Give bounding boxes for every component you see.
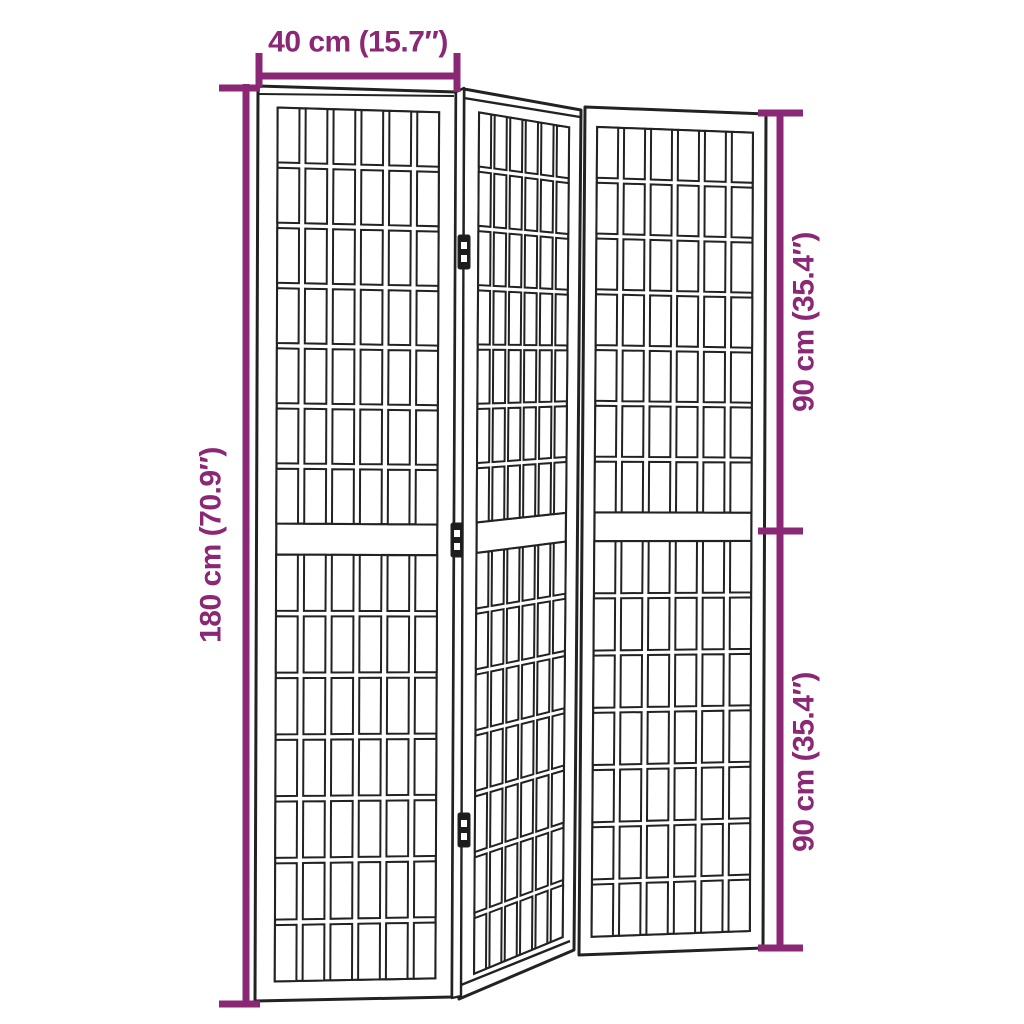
hinge-hole bbox=[461, 242, 467, 249]
lattice-cell bbox=[331, 678, 353, 734]
lattice-cell bbox=[623, 295, 644, 346]
panel-left-mid-rail bbox=[276, 555, 437, 556]
lattice-cell bbox=[361, 290, 383, 345]
lattice-cell bbox=[592, 884, 614, 937]
lattice-cell bbox=[553, 542, 565, 596]
lattice-cell bbox=[595, 462, 617, 513]
lattice-cell bbox=[554, 462, 567, 514]
lattice-cell bbox=[388, 410, 410, 465]
lattice-cell bbox=[389, 171, 411, 226]
lattice-cell bbox=[732, 132, 753, 183]
lattice-cell bbox=[414, 861, 436, 917]
lattice-cell bbox=[622, 462, 643, 513]
lattice-cell bbox=[678, 185, 699, 236]
lattice-cell bbox=[675, 598, 696, 650]
lattice-cell bbox=[360, 469, 382, 524]
lattice-cell bbox=[525, 178, 538, 231]
lattice-cell bbox=[592, 827, 614, 880]
panel-middle bbox=[459, 89, 581, 999]
lattice-cell bbox=[675, 711, 697, 763]
lattice-cell bbox=[417, 231, 439, 286]
lattice-cell bbox=[277, 228, 299, 283]
lattice-cell bbox=[705, 186, 726, 237]
lattice-cell bbox=[524, 350, 536, 402]
lattice-cell bbox=[651, 129, 672, 180]
lattice-cell bbox=[592, 770, 614, 823]
lattice-cell bbox=[276, 678, 298, 734]
lattice-cell bbox=[594, 541, 616, 593]
lattice-cell bbox=[416, 291, 438, 346]
lattice-cell bbox=[647, 769, 669, 821]
lattice-cell bbox=[649, 406, 670, 457]
lattice-cell bbox=[674, 881, 696, 933]
lattice-cell bbox=[277, 409, 299, 464]
lattice-cell bbox=[704, 297, 725, 348]
lattice-cell bbox=[416, 351, 438, 406]
hinge-icon bbox=[458, 235, 470, 269]
lattice-cell bbox=[389, 111, 411, 166]
lattice-cell bbox=[731, 407, 752, 457]
lattice-cell bbox=[523, 464, 535, 517]
lattice-cell bbox=[475, 793, 487, 852]
lattice-cell bbox=[525, 235, 537, 288]
lattice-cell bbox=[703, 462, 724, 512]
lattice-cell bbox=[475, 733, 487, 792]
lattice-cell bbox=[305, 169, 327, 224]
lattice-cell bbox=[476, 552, 488, 609]
lattice-cell bbox=[387, 616, 409, 672]
lattice-cell bbox=[650, 351, 671, 402]
lattice-cell bbox=[521, 780, 533, 837]
lattice-cell bbox=[540, 293, 553, 345]
hinge-hole bbox=[461, 833, 467, 840]
lattice-cell bbox=[677, 296, 698, 347]
lattice-cell bbox=[494, 174, 506, 229]
lattice-cell bbox=[729, 710, 751, 762]
lattice-cell bbox=[539, 407, 551, 459]
lattice-cell bbox=[331, 739, 353, 795]
lattice-cell bbox=[477, 409, 489, 463]
lattice-cell bbox=[597, 127, 618, 178]
lattice-cell bbox=[702, 654, 724, 706]
hinge-hole bbox=[454, 543, 460, 550]
lattice-cell bbox=[417, 171, 439, 226]
lattice-cell bbox=[703, 598, 724, 650]
lattice-cell bbox=[414, 800, 436, 856]
lattice-cell bbox=[621, 598, 643, 650]
lattice-cell bbox=[507, 548, 519, 604]
lattice-cell bbox=[648, 541, 669, 593]
lattice-cell bbox=[493, 408, 505, 462]
lattice-cell bbox=[731, 297, 752, 348]
lattice-cell bbox=[491, 729, 503, 787]
lattice-cell bbox=[729, 880, 751, 932]
lattice-cell bbox=[702, 767, 724, 819]
lattice-cell bbox=[415, 617, 437, 673]
lattice-cell bbox=[276, 555, 298, 611]
lattice-cell bbox=[389, 290, 411, 345]
lattice-cell bbox=[361, 170, 383, 225]
lattice-cell bbox=[388, 470, 410, 525]
panel-right bbox=[579, 107, 766, 955]
lattice-cell bbox=[729, 767, 751, 819]
lattice-cell bbox=[524, 293, 536, 346]
lattice-cell bbox=[619, 826, 641, 879]
lattice-cell bbox=[620, 769, 642, 821]
lattice-cell bbox=[622, 406, 644, 457]
lattice-cell bbox=[553, 656, 565, 711]
lattice-cell bbox=[506, 784, 518, 842]
lattice-cell bbox=[508, 350, 520, 403]
lattice-cell bbox=[523, 546, 535, 601]
lattice-cell bbox=[538, 544, 551, 599]
lattice-cell bbox=[593, 655, 615, 707]
lattice-cell bbox=[494, 115, 507, 170]
room-divider-dimension-diagram: 40 cm (15.7″) 180 cm (70.9″) 90 cm (35.4… bbox=[0, 0, 1024, 1024]
lattice-cell bbox=[333, 109, 355, 164]
lattice-cell bbox=[303, 678, 325, 734]
lattice-cell bbox=[491, 669, 503, 726]
lattice-cell bbox=[677, 241, 698, 292]
lattice-cell bbox=[524, 407, 536, 460]
lattice-cell bbox=[521, 838, 533, 896]
lattice-cell bbox=[305, 289, 327, 344]
lattice-cell bbox=[552, 771, 564, 827]
lattice-cell bbox=[674, 768, 696, 820]
hinge-icon bbox=[458, 813, 470, 847]
lattice-cell bbox=[540, 237, 553, 289]
lattice-cell bbox=[305, 229, 327, 284]
dimension-label-height: 180 cm (70.9″) bbox=[195, 447, 228, 643]
lattice-cell bbox=[389, 231, 411, 286]
lattice-cell bbox=[415, 678, 437, 734]
hinge-hole bbox=[461, 255, 467, 262]
lattice-cell bbox=[595, 406, 617, 457]
lattice-cell bbox=[509, 292, 521, 345]
lattice-cell bbox=[332, 555, 354, 611]
lattice-cell bbox=[304, 616, 326, 672]
lattice-cell bbox=[489, 908, 501, 967]
lattice-cell bbox=[730, 541, 751, 593]
lattice-cell bbox=[539, 350, 551, 402]
dimension-label-panel-height-top: 90 cm (35.4″) bbox=[788, 232, 821, 412]
lattice-cell bbox=[624, 128, 645, 179]
lattice-cell bbox=[508, 408, 520, 461]
lattice-cell bbox=[333, 229, 355, 284]
lattice-cell bbox=[277, 168, 299, 223]
lattice-cell bbox=[522, 663, 534, 719]
lattice-cell bbox=[596, 239, 617, 290]
lattice-cell bbox=[358, 862, 380, 918]
lattice-cell bbox=[278, 108, 300, 163]
dimension-label-width: 40 cm (15.7″) bbox=[268, 26, 448, 59]
lattice-cell bbox=[674, 825, 696, 877]
lattice-cell bbox=[701, 880, 723, 932]
lattice-cell bbox=[701, 824, 723, 876]
lattice-cell bbox=[648, 598, 670, 650]
lattice-cell bbox=[277, 288, 299, 343]
lattice-cell bbox=[551, 828, 563, 885]
lattice-cell bbox=[552, 713, 564, 769]
lattice-cell bbox=[333, 349, 355, 404]
lattice-cell bbox=[493, 291, 505, 345]
lattice-cell bbox=[303, 863, 325, 920]
lattice-cell bbox=[703, 541, 724, 593]
lattice-cell bbox=[703, 407, 724, 458]
lattice-cell bbox=[623, 184, 644, 235]
lattice-cell bbox=[478, 231, 490, 286]
lattice-cell bbox=[505, 902, 517, 961]
lattice-cell bbox=[478, 172, 491, 227]
lattice-cell bbox=[303, 924, 325, 981]
lattice-cell bbox=[415, 739, 437, 795]
lattice-cell bbox=[478, 290, 490, 344]
hinge-hole bbox=[454, 530, 460, 537]
lattice-cell bbox=[553, 599, 566, 654]
lattice-cell bbox=[387, 678, 409, 734]
lattice-cell bbox=[510, 176, 523, 230]
lattice-cell bbox=[476, 612, 488, 670]
lattice-cell bbox=[492, 466, 504, 520]
hinge-body bbox=[458, 813, 470, 847]
lattice-cell bbox=[479, 113, 491, 169]
lattice-cell bbox=[651, 184, 672, 235]
lattice-cell bbox=[477, 468, 489, 523]
lattice-cell bbox=[275, 740, 297, 796]
lattice-cell bbox=[619, 883, 641, 936]
lattice-cell bbox=[494, 232, 507, 286]
lattice-cell bbox=[730, 654, 751, 706]
lattice-cell bbox=[541, 180, 554, 233]
lattice-cell bbox=[333, 169, 355, 224]
lattice-cell bbox=[509, 234, 521, 287]
lattice-cell bbox=[595, 350, 616, 401]
lattice-cell bbox=[535, 891, 547, 949]
lattice-cell bbox=[304, 555, 326, 611]
lattice-cell bbox=[359, 739, 381, 795]
lattice-cell bbox=[594, 598, 616, 650]
lattice-cell bbox=[536, 775, 548, 832]
lattice-cell bbox=[520, 897, 532, 955]
lattice-cell bbox=[541, 123, 554, 176]
lattice-cell bbox=[386, 862, 408, 918]
lattice-cell bbox=[414, 923, 436, 979]
dimension-label-panel-height-bottom: 90 cm (35.4″) bbox=[788, 672, 821, 852]
lattice-cell bbox=[474, 853, 486, 912]
lattice-cell bbox=[332, 409, 354, 464]
lattice-cell bbox=[477, 350, 489, 404]
lattice-cell bbox=[304, 469, 326, 524]
lattice-cell bbox=[387, 555, 409, 611]
lattice-cell bbox=[555, 294, 568, 345]
lattice-cell bbox=[332, 616, 354, 672]
lattice-cell bbox=[474, 914, 486, 974]
lattice-cell bbox=[358, 923, 380, 979]
lattice-cell bbox=[360, 410, 382, 465]
lattice-cell bbox=[702, 711, 724, 763]
panel-left-mid-rail bbox=[276, 523, 437, 524]
lattice-cell bbox=[333, 289, 355, 344]
lattice-cell bbox=[359, 678, 381, 734]
lattice-cell bbox=[676, 407, 697, 458]
lattice-cell bbox=[416, 410, 438, 465]
lattice-cell bbox=[386, 800, 408, 856]
lattice-cell bbox=[303, 740, 325, 796]
lattice-cell bbox=[650, 295, 671, 346]
lattice-cell bbox=[521, 721, 533, 778]
lattice-cell bbox=[305, 349, 327, 404]
lattice-cell bbox=[505, 843, 517, 901]
hinge-icon bbox=[451, 523, 463, 557]
lattice-cell bbox=[506, 725, 518, 782]
lattice-cell bbox=[622, 351, 643, 402]
lattice-cell bbox=[386, 923, 408, 979]
lattice-cell bbox=[506, 666, 518, 723]
lattice-cell bbox=[539, 463, 552, 516]
lattice-cell bbox=[677, 351, 698, 402]
lattice-cell bbox=[596, 294, 617, 345]
lattice-cell bbox=[593, 713, 615, 766]
lattice-cell bbox=[675, 655, 696, 707]
lattice-cell bbox=[330, 924, 352, 980]
lattice-cell bbox=[646, 882, 668, 935]
lattice-cell bbox=[731, 242, 752, 293]
lattice-cell bbox=[490, 789, 502, 847]
lattice-cell bbox=[510, 118, 523, 173]
lattice-cell bbox=[522, 604, 534, 660]
lattice-cell bbox=[359, 616, 381, 672]
lattice-cell bbox=[731, 352, 752, 403]
lattice-cell bbox=[332, 469, 354, 524]
lattice-cell bbox=[650, 240, 671, 291]
lattice-cell bbox=[556, 182, 569, 234]
lattice-cell bbox=[678, 130, 699, 181]
lattice-cell bbox=[537, 659, 549, 715]
lattice-cell bbox=[275, 863, 297, 920]
lattice-cell bbox=[621, 655, 643, 707]
lattice-cell bbox=[490, 848, 502, 907]
lattice-cell bbox=[303, 801, 325, 857]
lattice-cell bbox=[277, 348, 299, 403]
lattice-cell bbox=[492, 550, 504, 606]
lattice-cell bbox=[730, 597, 751, 649]
lattice-cell bbox=[388, 350, 410, 405]
lattice-cell bbox=[507, 607, 519, 663]
lattice-cell bbox=[476, 672, 488, 730]
lattice-cell bbox=[621, 541, 643, 593]
lattice-cell bbox=[704, 352, 725, 403]
lattice-cell bbox=[417, 112, 439, 167]
lattice-cell bbox=[536, 833, 548, 890]
panel-left bbox=[255, 86, 456, 1001]
lattice-cell bbox=[331, 862, 353, 918]
lattice-cell bbox=[649, 462, 671, 513]
lattice-cell bbox=[555, 350, 568, 401]
lattice-cell bbox=[623, 239, 644, 290]
lattice-cell bbox=[647, 825, 669, 878]
lattice-cell bbox=[730, 462, 751, 512]
lattice-cell bbox=[551, 885, 563, 942]
lattice-cell bbox=[596, 183, 617, 234]
lattice-cell bbox=[276, 616, 298, 672]
lattice-cell bbox=[493, 350, 505, 404]
lattice-cell bbox=[416, 470, 438, 525]
lattice-cell bbox=[508, 465, 520, 519]
divider-line-art bbox=[255, 86, 766, 1001]
lattice-cell bbox=[554, 406, 567, 458]
lattice-cell bbox=[359, 801, 381, 857]
lattice-cell bbox=[647, 712, 669, 764]
lattice-cell bbox=[648, 655, 670, 707]
lattice-cell bbox=[729, 823, 751, 875]
lattice-cell bbox=[415, 555, 437, 611]
lattice-cell bbox=[304, 409, 326, 464]
lattice-cell bbox=[705, 131, 726, 182]
lattice-cell bbox=[360, 350, 382, 405]
lattice-cell bbox=[276, 469, 298, 524]
lattice-cell bbox=[704, 241, 725, 292]
lattice-cell bbox=[556, 238, 569, 290]
lattice-cell bbox=[275, 801, 297, 858]
lattice-cell bbox=[557, 125, 570, 178]
lattice-cell bbox=[306, 108, 328, 163]
lattice-cell bbox=[676, 462, 697, 512]
lattice-cell bbox=[620, 712, 642, 764]
lattice-cell bbox=[275, 925, 297, 982]
lattice-cell bbox=[331, 801, 353, 857]
lattice-cell bbox=[676, 541, 697, 593]
lattice-cell bbox=[361, 230, 383, 285]
hinge-hole bbox=[461, 820, 467, 827]
lattice-cell bbox=[360, 555, 382, 611]
lattice-cell bbox=[526, 120, 539, 174]
lattice-cell bbox=[732, 187, 753, 238]
lattice-cell bbox=[387, 739, 409, 795]
lattice-cell bbox=[538, 601, 550, 656]
hinge-body bbox=[458, 235, 470, 269]
hinge-body bbox=[451, 523, 463, 557]
lattice-cell bbox=[491, 609, 503, 666]
lattice-cell bbox=[537, 717, 549, 773]
lattice-cell bbox=[361, 110, 383, 165]
